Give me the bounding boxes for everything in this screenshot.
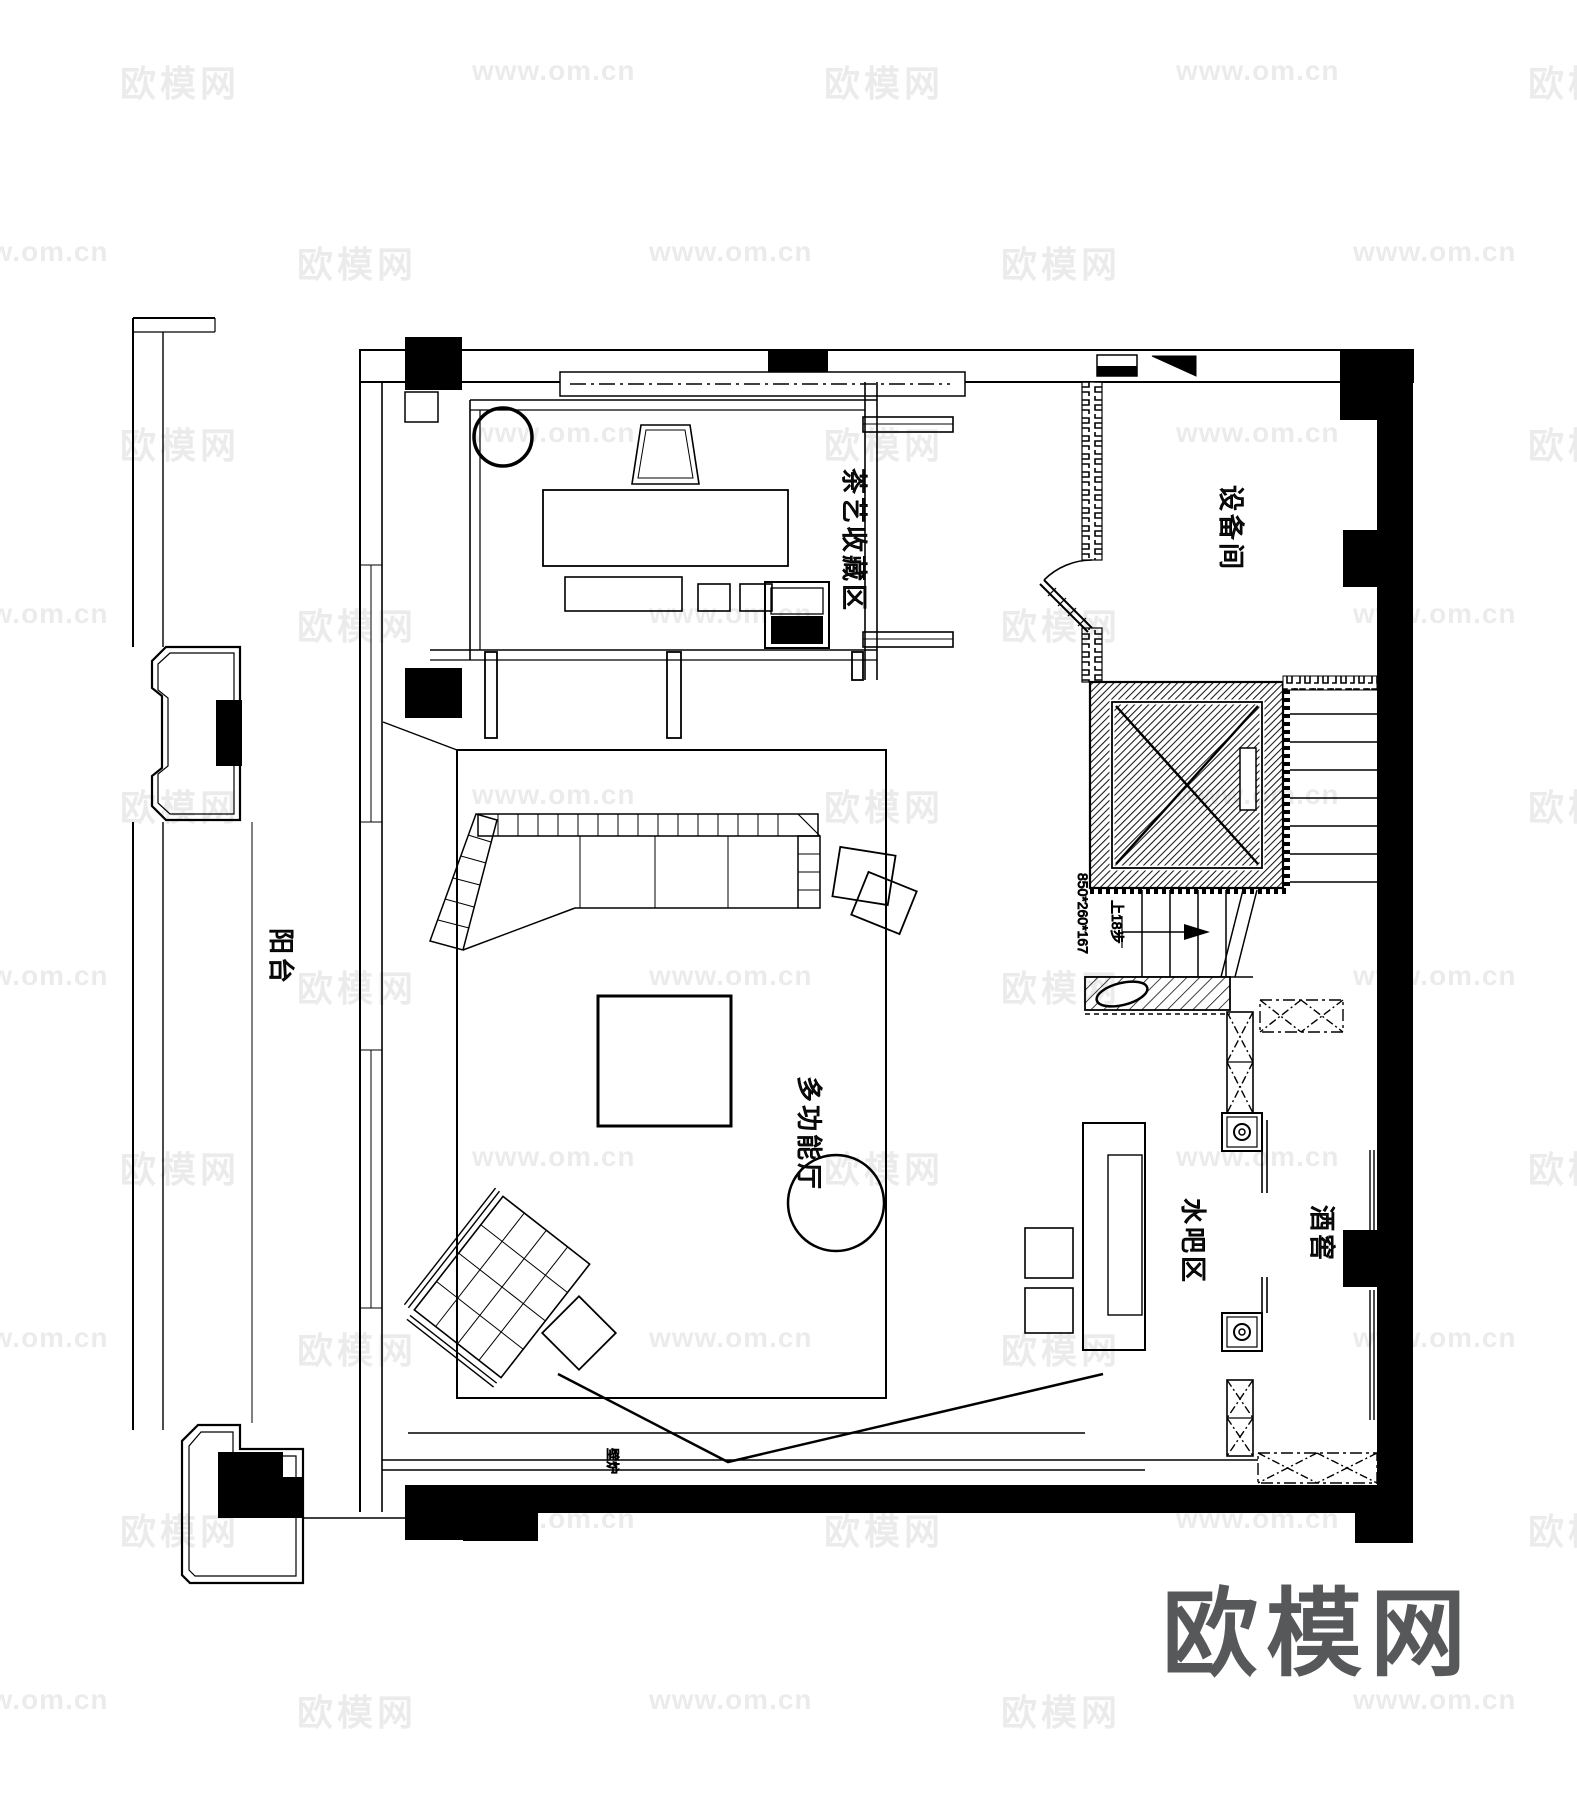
column: [1343, 1230, 1379, 1287]
brand-logo: 欧模网: [1162, 1556, 1474, 1695]
label-tea-collection: 茶艺收藏区: [839, 468, 869, 613]
stairs-landing: [1085, 977, 1230, 1014]
floor-plan-page: 阳台: [0, 0, 1577, 1800]
label-wine-cellar: 酒窖: [1307, 1205, 1337, 1263]
paper: [0, 0, 1577, 1800]
column: [405, 1485, 463, 1540]
label-water-bar: 水吧区: [1178, 1198, 1208, 1285]
wall-symbol-halfrect: [1097, 355, 1137, 376]
column: [1343, 530, 1379, 587]
stairs-direction-annotation: 上18步: [1109, 900, 1125, 944]
insulated-wall: [1082, 382, 1102, 560]
label-equipment: 设备间: [1216, 485, 1246, 572]
insulated-wall: [1283, 676, 1377, 690]
floor-plan-drawing: 阳台: [0, 0, 1577, 1800]
column: [405, 337, 462, 390]
label-multifunction-hall: 多功能厅: [794, 1076, 824, 1192]
label-fireplace: 壁炉: [605, 1448, 620, 1474]
insulated-wall: [1082, 628, 1102, 682]
elevator-door-notch: [1240, 748, 1256, 810]
column: [405, 668, 462, 718]
stairs-size-annotation: 850*260*167: [1075, 873, 1091, 954]
label-balcony: 阳台: [266, 928, 296, 986]
curtain-track: [560, 372, 965, 396]
